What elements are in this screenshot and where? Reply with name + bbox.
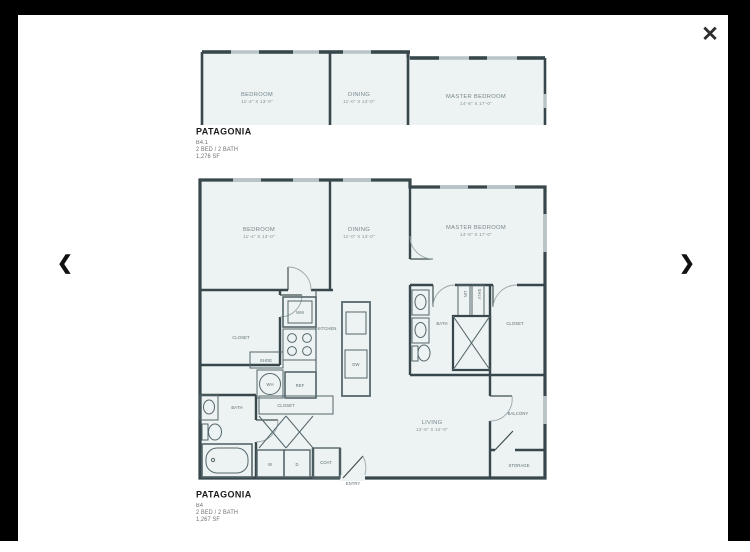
plan1-caption: PATAGONIA B4.1 2 BED / 2 BATH 1,276 SF [196, 126, 252, 161]
plan2-area: 1,267 SF [196, 517, 247, 524]
washer-label: W [268, 462, 272, 467]
bath-master-label: BATH [436, 321, 447, 326]
ref-label: REF [296, 383, 305, 388]
bath-left-label: BATH [231, 405, 242, 410]
dw-label: DW [352, 362, 359, 367]
balcony-label: BALCONY [508, 411, 529, 416]
plan1-bedroom-label: BEDROOM [241, 92, 273, 98]
entry-label: ENTRY [346, 481, 361, 486]
shoe-label: SHOE [260, 358, 272, 363]
plan1-master-dims: 14'-8" X 17'-0" [460, 101, 492, 106]
shlv-label: SHLV [477, 288, 482, 299]
plan1-dining-dims: 11'-0" X 13'-0" [343, 99, 375, 104]
dryer-label: D [295, 462, 298, 467]
living-label: LIVING [422, 420, 443, 426]
lightbox-left-bar [0, 0, 18, 541]
floorplan-image-b4: BEDROOM 11'-4" X 13'-0" DINING 11'-0" X … [193, 174, 553, 488]
plan1-master-label: MASTER BEDROOM [446, 94, 506, 100]
closet-hall-label: CLOSET [277, 403, 295, 408]
plan2-caption: PATAGONIA B4 2 BED / 2 BATH 1,267 SF [196, 489, 252, 524]
lin-label: LIN [463, 291, 468, 298]
lightbox-top-bar [0, 0, 750, 15]
floorplan-image-b4-1: BEDROOM 11'-4" X 13'-0" DINING 11'-0" X … [193, 44, 553, 125]
plan1-title: PATAGONIA [196, 126, 252, 137]
closet-master-label: CLOSET [506, 321, 524, 326]
living-dims: 12'-6" X 12'-0" [416, 427, 448, 432]
kitchen-label: KITCHEN [317, 326, 336, 331]
plan1-dining-label: DINING [348, 92, 370, 98]
master-bedroom-label: MASTER BEDROOM [446, 225, 506, 231]
wm-label: WM [296, 310, 304, 315]
plan1-bedroom-dims: 11'-4" X 13'-0" [241, 99, 273, 104]
master-bedroom-dims: 14'-8" X 17'-0" [460, 232, 492, 237]
close-icon[interactable]: ✕ [697, 22, 723, 48]
plan1-floor-area [202, 52, 545, 125]
wh-label: WH [266, 382, 273, 387]
plan1-details: B4.1 2 BED / 2 BATH 1,276 SF [196, 140, 247, 161]
coat-label: COAT [320, 460, 332, 465]
plan1-config: 2 BED / 2 BATH [196, 147, 247, 154]
bedroom-label: BEDROOM [243, 227, 275, 233]
plan2-config: 2 BED / 2 BATH [196, 510, 247, 517]
plan2-unit: B4 [196, 503, 247, 510]
dining-label: DINING [348, 227, 370, 233]
lightbox-right-bar [728, 0, 750, 541]
plan2-details: B4 2 BED / 2 BATH 1,267 SF [196, 503, 247, 524]
plan1-unit: B4.1 [196, 140, 247, 147]
plan1-area: 1,276 SF [196, 154, 247, 161]
bedroom-dims: 11'-4" X 13'-0" [243, 234, 275, 239]
storage-label: STORAGE [508, 463, 529, 468]
next-arrow-icon[interactable]: ❯ [676, 249, 698, 279]
closet-left-label: CLOSET [232, 335, 250, 340]
plan2-title: PATAGONIA [196, 489, 252, 500]
dining-dims: 11'-0" X 13'-0" [343, 234, 375, 239]
prev-arrow-icon[interactable]: ❮ [54, 249, 76, 279]
